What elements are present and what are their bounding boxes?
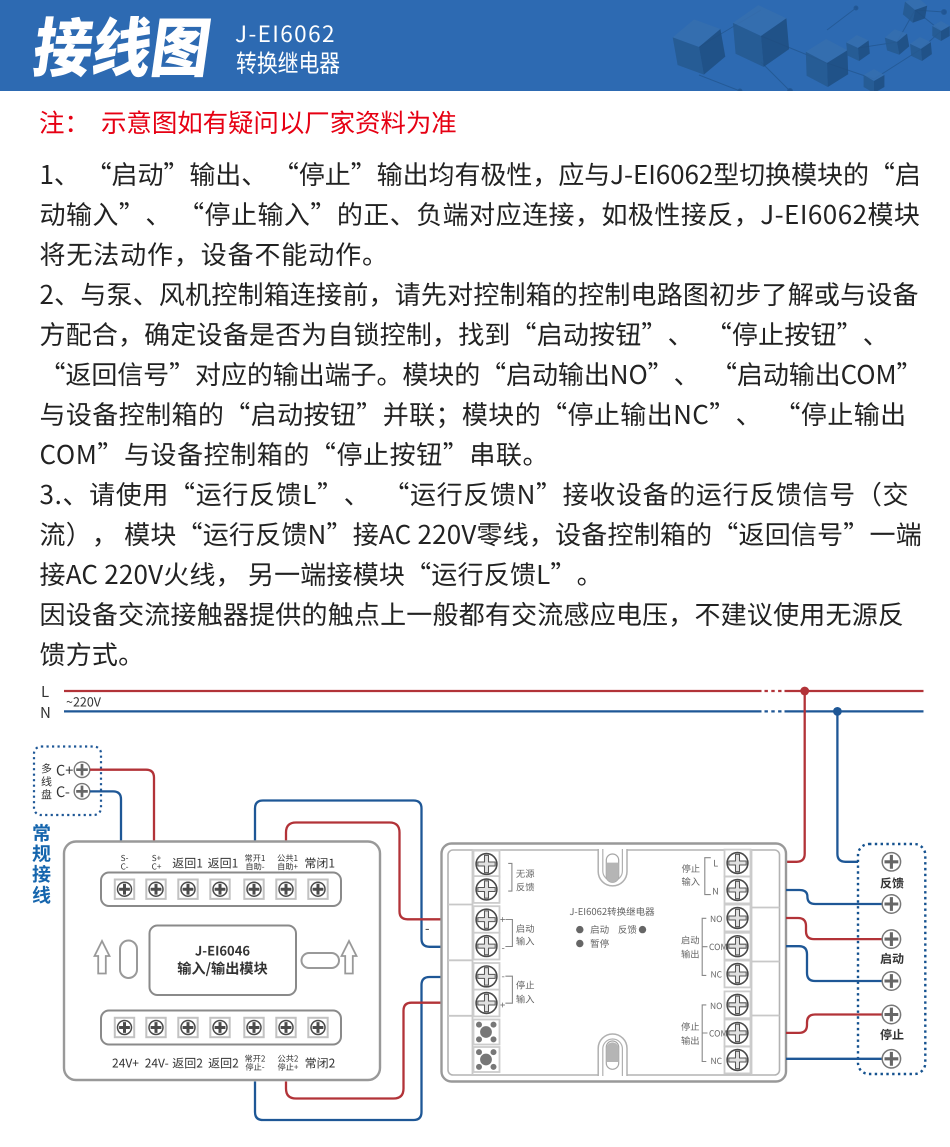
svg-text:-: - bbox=[502, 969, 505, 983]
svg-text:停止: 停止 bbox=[880, 1026, 904, 1043]
svg-text:-: - bbox=[425, 918, 430, 937]
svg-text:NO: NO bbox=[710, 1000, 722, 1012]
svg-text:返回2: 返回2 bbox=[172, 1055, 203, 1072]
svg-text:输入: 输入 bbox=[516, 991, 535, 1005]
svg-text:N: N bbox=[712, 884, 719, 897]
svg-text:~220V: ~220V bbox=[66, 692, 102, 711]
svg-text:反馈: 反馈 bbox=[516, 879, 535, 893]
svg-text:输入: 输入 bbox=[516, 934, 535, 948]
svg-text:NC: NC bbox=[711, 968, 723, 980]
svg-text:启动: 启动 bbox=[880, 950, 904, 967]
svg-text:输入: 输入 bbox=[682, 874, 701, 888]
svg-text:NO: NO bbox=[710, 913, 722, 925]
svg-text:C+: C+ bbox=[152, 861, 162, 873]
svg-text:NC: NC bbox=[711, 1055, 723, 1067]
svg-text:停止+: 停止+ bbox=[278, 1061, 299, 1073]
svg-text:停止: 停止 bbox=[516, 977, 535, 991]
svg-text:启动: 启动 bbox=[681, 932, 700, 946]
svg-text:返回1: 返回1 bbox=[172, 854, 203, 871]
svg-text:停止: 停止 bbox=[682, 861, 701, 875]
svg-text:J-EI6062转换继电器: J-EI6062转换继电器 bbox=[569, 904, 655, 918]
svg-text:输出: 输出 bbox=[681, 1033, 700, 1047]
svg-text:COM: COM bbox=[709, 941, 727, 953]
svg-text:启动: 启动 bbox=[590, 922, 609, 936]
svg-text:返回1: 返回1 bbox=[208, 854, 239, 871]
svg-text:停止-: 停止- bbox=[245, 1061, 264, 1073]
svg-text:停止: 停止 bbox=[681, 1019, 700, 1033]
svg-text:盘: 盘 bbox=[41, 787, 52, 803]
svg-text:反馈: 反馈 bbox=[618, 922, 638, 936]
svg-text:暂停: 暂停 bbox=[590, 936, 610, 950]
svg-text:-: - bbox=[502, 940, 505, 954]
svg-text:无源: 无源 bbox=[516, 866, 535, 880]
svg-text:输入/输出模块: 输入/输出模块 bbox=[177, 959, 268, 979]
svg-text:COM: COM bbox=[709, 1028, 727, 1040]
svg-text:反馈: 反馈 bbox=[880, 875, 904, 892]
svg-text:+: + bbox=[500, 998, 505, 1012]
svg-text:J-EI6046: J-EI6046 bbox=[195, 941, 250, 960]
svg-text:L: L bbox=[713, 856, 718, 869]
svg-text:线: 线 bbox=[32, 881, 51, 908]
svg-text:常闭1: 常闭1 bbox=[304, 854, 335, 871]
svg-text:L: L bbox=[41, 681, 49, 702]
svg-text:24V+: 24V+ bbox=[112, 1055, 139, 1072]
svg-text:自助+: 自助+ bbox=[277, 861, 298, 873]
svg-text:C+: C+ bbox=[56, 760, 73, 781]
svg-text:返回2: 返回2 bbox=[208, 1055, 239, 1072]
svg-text:输出: 输出 bbox=[681, 947, 700, 961]
svg-text:24V-: 24V- bbox=[145, 1055, 169, 1072]
svg-text:C-: C- bbox=[121, 861, 129, 873]
svg-text:常闭2: 常闭2 bbox=[305, 1055, 336, 1072]
svg-text:N: N bbox=[40, 702, 51, 723]
svg-text:+: + bbox=[500, 912, 505, 926]
svg-text:自助-: 自助- bbox=[245, 861, 264, 873]
svg-text:C-: C- bbox=[56, 781, 70, 802]
